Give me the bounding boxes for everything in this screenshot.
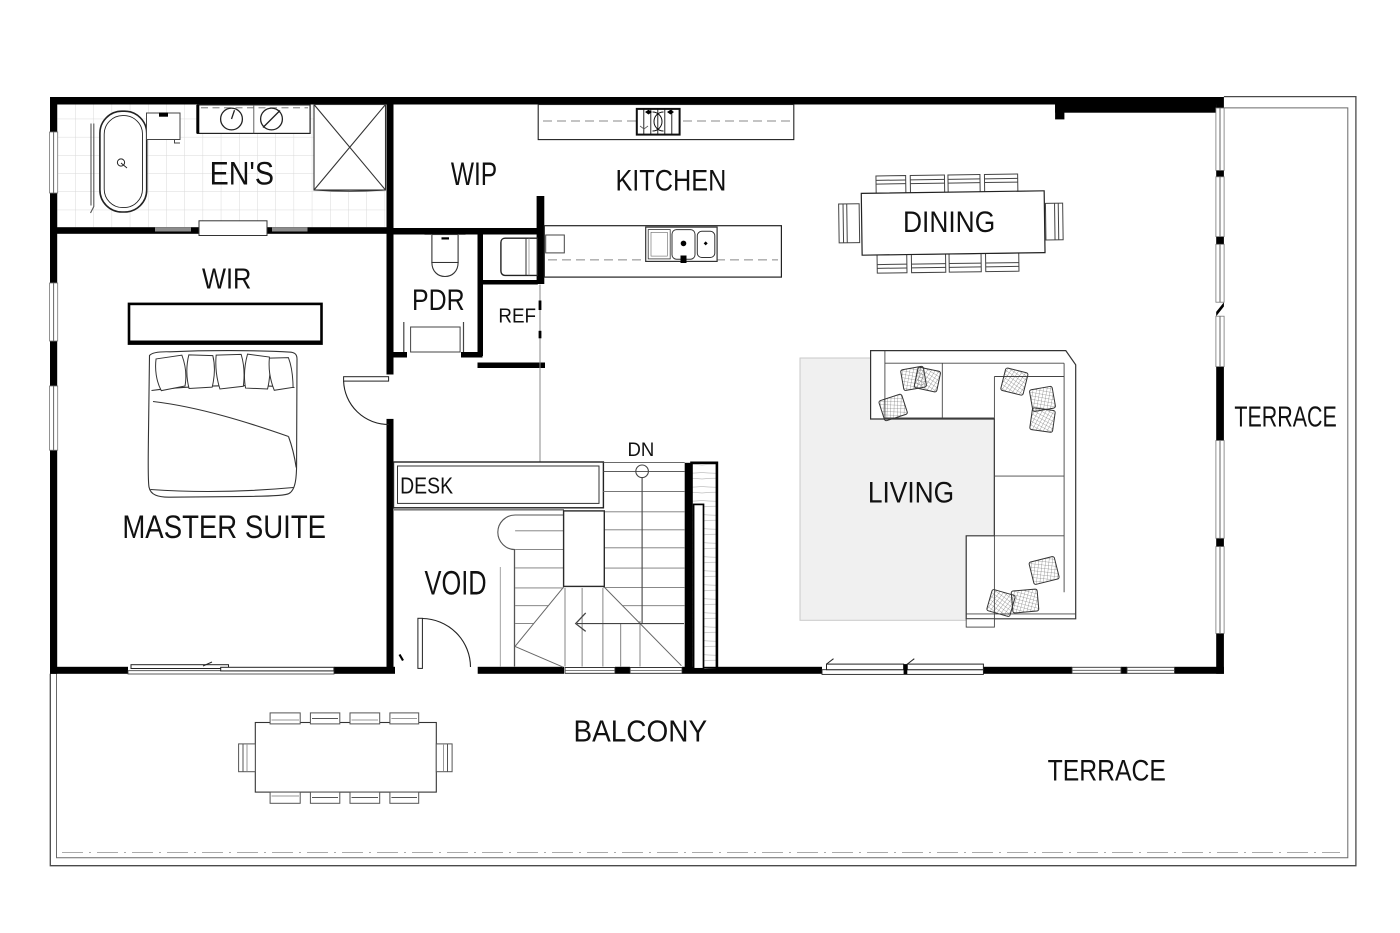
svg-text:VOID: VOID: [425, 565, 487, 603]
svg-text:BALCONY: BALCONY: [573, 714, 707, 749]
svg-text:PDR: PDR: [412, 284, 465, 317]
svg-text:KITCHEN: KITCHEN: [615, 164, 726, 197]
svg-text:TERRACE: TERRACE: [1048, 754, 1166, 787]
svg-text:DINING: DINING: [903, 206, 995, 239]
svg-text:WIP: WIP: [451, 156, 497, 192]
svg-text:DN: DN: [628, 440, 655, 461]
svg-text:EN'S: EN'S: [210, 156, 274, 192]
svg-text:MASTER SUITE: MASTER SUITE: [122, 509, 326, 545]
svg-text:WIR: WIR: [202, 263, 251, 295]
svg-text:TERRACE: TERRACE: [1234, 402, 1337, 434]
svg-text:DESK: DESK: [400, 473, 453, 499]
svg-text:REF: REF: [498, 306, 536, 328]
svg-text:LIVING: LIVING: [868, 477, 954, 510]
